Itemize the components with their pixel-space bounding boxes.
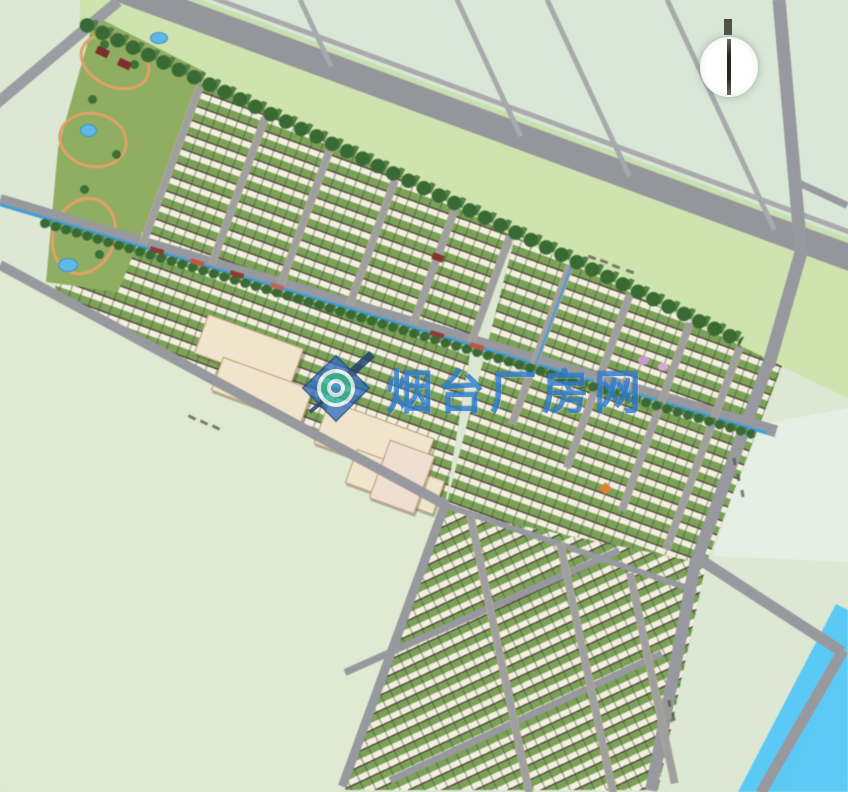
compass-top-nub bbox=[724, 19, 732, 35]
park-tree-5 bbox=[80, 185, 89, 194]
park-pond-2 bbox=[80, 124, 97, 137]
site-plan-map: 烟台厂房网 bbox=[0, 0, 848, 792]
park-tree-6 bbox=[95, 250, 104, 259]
flowering-tree-2 bbox=[658, 363, 668, 371]
park-pond-1 bbox=[150, 32, 168, 44]
river-bank-road-1 bbox=[697, 555, 846, 657]
compass-needle bbox=[727, 39, 731, 95]
park-tree-3 bbox=[88, 95, 97, 104]
watermark: 烟台厂房网 bbox=[296, 348, 646, 428]
park-tree-4 bbox=[112, 150, 121, 159]
magnifier-diamond-logo-icon bbox=[296, 348, 376, 428]
road-label-marks bbox=[671, 714, 675, 721]
north-arrow-icon bbox=[700, 33, 758, 97]
park-pond-3 bbox=[58, 258, 78, 272]
watermark-text: 烟台厂房网 bbox=[386, 354, 646, 423]
